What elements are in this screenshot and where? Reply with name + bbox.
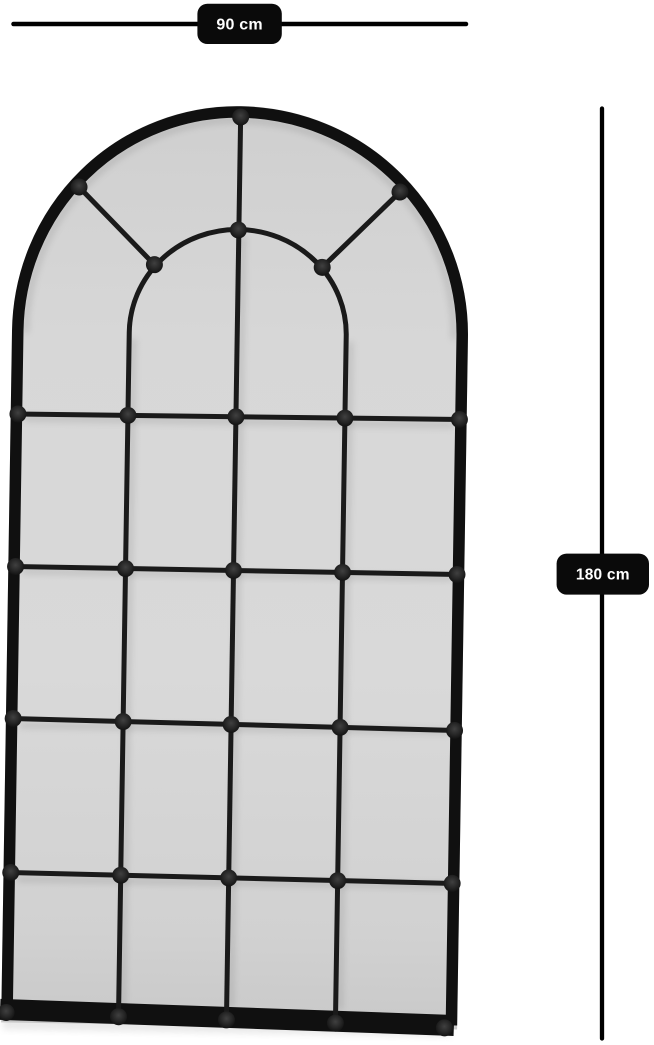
svg-text:180 cm: 180 cm — [576, 567, 630, 584]
svg-text:90 cm: 90 cm — [216, 17, 262, 34]
